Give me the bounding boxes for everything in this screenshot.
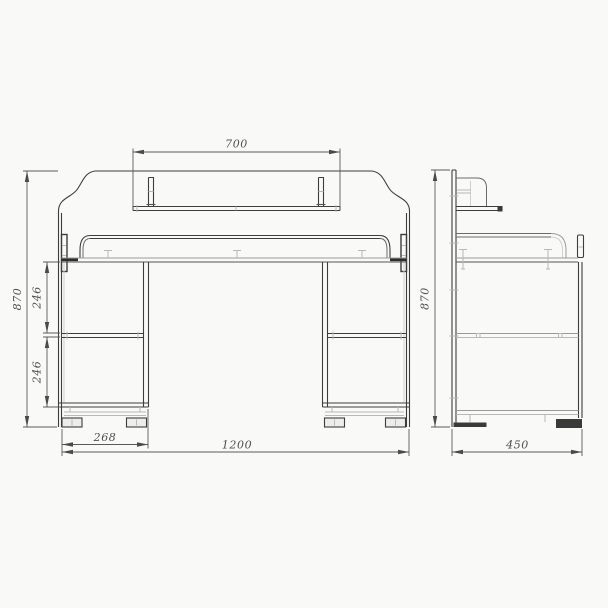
bed-rail xyxy=(80,236,390,258)
left-pedestal xyxy=(59,262,149,427)
dim-label-side-height: 870 xyxy=(419,287,432,310)
dim-label-lower-gap: 246 xyxy=(31,361,44,385)
dimension-side-height: 870 xyxy=(419,170,451,427)
dimension-shelf-width: 700 xyxy=(133,138,340,211)
shelf-fastener xyxy=(559,334,563,338)
bed-platform xyxy=(62,251,407,263)
right-pedestal-bottom xyxy=(323,403,410,427)
left-pedestal-shelf xyxy=(62,332,144,340)
pedestal-side xyxy=(454,262,583,428)
top-shelf-side xyxy=(456,178,503,212)
dim-label-upper-gap: 246 xyxy=(31,286,44,310)
foot xyxy=(454,423,487,428)
shelf-end-cap xyxy=(498,206,503,212)
dimension-pedestal-width: 268 xyxy=(62,409,148,449)
drawing-canvas: 700 870 246 246 268 1200 xyxy=(0,0,608,608)
platform-side xyxy=(456,250,578,270)
dimension-upper-gap: 246 xyxy=(31,262,61,333)
foot xyxy=(556,419,582,428)
left-pedestal-bottom xyxy=(59,403,149,427)
front-rail-section xyxy=(578,235,584,258)
right-pedestal xyxy=(323,262,410,427)
shelf-fastener xyxy=(477,334,481,338)
front-view xyxy=(59,171,410,427)
dim-label-total-width: 1200 xyxy=(222,439,252,452)
top-shelf xyxy=(133,178,340,213)
dim-label-depth: 450 xyxy=(505,439,529,452)
dimensions: 700 870 246 246 268 1200 xyxy=(11,138,582,457)
shelf-bracket-left xyxy=(147,178,156,207)
back-panel xyxy=(450,170,459,427)
dim-label-front-height: 870 xyxy=(11,288,24,311)
furniture-technical-drawing: 700 870 246 246 268 1200 xyxy=(0,0,608,608)
side-view xyxy=(450,170,584,428)
desk-surface-side xyxy=(456,234,566,258)
right-pedestal-shelf xyxy=(328,332,407,340)
dimension-depth: 450 xyxy=(452,429,582,456)
headboard-panel xyxy=(59,171,410,211)
dimension-lower-gap: 246 xyxy=(31,337,61,407)
shelf-bracket-right xyxy=(317,178,326,207)
dim-label-shelf-width: 700 xyxy=(225,138,248,151)
dim-label-pedestal-width: 268 xyxy=(93,431,117,444)
